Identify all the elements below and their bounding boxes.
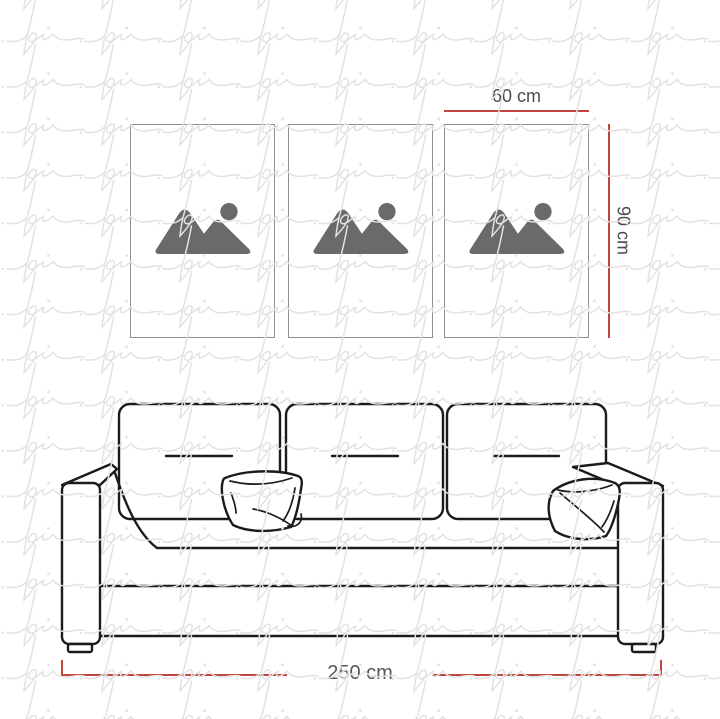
artwork-frame-1	[130, 124, 275, 338]
wall-art-size-visualization: 60 cm 90 cm	[0, 0, 720, 719]
frame-width-dimension-line	[444, 110, 589, 112]
sofa-feet	[68, 644, 656, 652]
sofa-width-dimension-line-right	[432, 674, 662, 676]
frame-width-label: 60 cm	[444, 86, 589, 108]
artwork-frame-2	[288, 124, 433, 338]
frame-height-dimension-line	[608, 124, 610, 338]
sofa-width-dimension-line-left	[61, 674, 287, 676]
sofa-illustration	[55, 393, 665, 655]
artwork-frame-3	[444, 124, 589, 338]
frame-height-label: 90 cm	[612, 124, 634, 338]
sofa-armrest-left	[62, 464, 117, 644]
sofa-back-cushions	[119, 404, 606, 519]
image-placeholder-icon	[467, 201, 567, 255]
image-placeholder-icon	[311, 201, 411, 255]
image-placeholder-icon	[153, 201, 253, 255]
sofa-pillow-left	[222, 471, 302, 531]
sofa-width-label: 250 cm	[292, 661, 428, 685]
sofa-pillow-right	[549, 479, 620, 539]
